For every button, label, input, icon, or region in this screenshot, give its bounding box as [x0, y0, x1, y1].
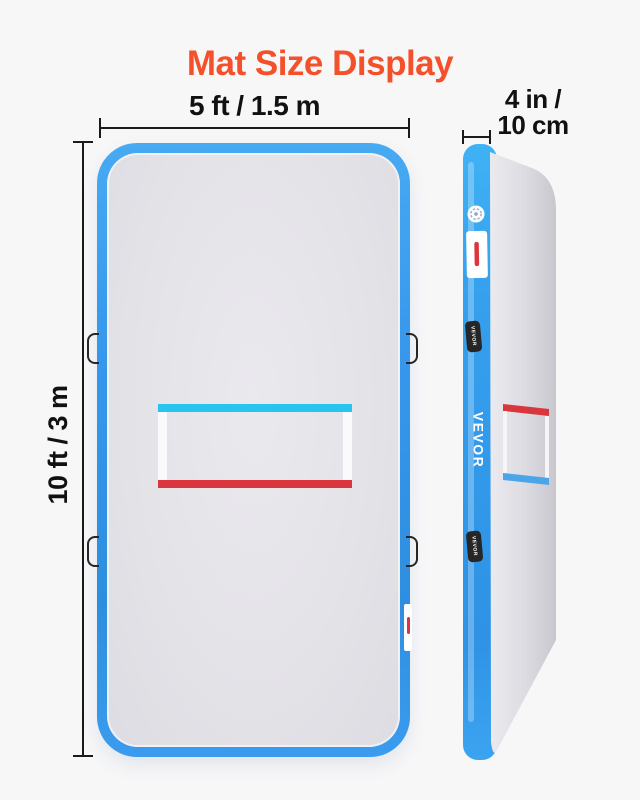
edge-label-red-mark [407, 617, 410, 634]
side-marking-left-line [503, 411, 507, 473]
side-white-label [466, 231, 488, 278]
mat-size-diagram: Mat Size Display 5 ft / 1.5 m 10 ft / 3 … [0, 0, 640, 800]
mat-handle [406, 536, 418, 567]
mat-handle [87, 333, 99, 364]
mat-top-view [97, 143, 410, 757]
mat-handle [87, 536, 99, 567]
dim-line [82, 141, 84, 757]
page-title: Mat Size Display [0, 44, 640, 84]
center-marking-red-line [158, 480, 352, 488]
air-valve-icon [468, 206, 485, 223]
height-dimension-line [73, 141, 93, 757]
dim-tick [408, 118, 410, 138]
thickness-label-line1: 4 in / [480, 86, 586, 112]
center-marking-right-line [343, 412, 352, 480]
edge-white-label [404, 604, 412, 651]
mat-side-view: VEVOR VEVOR VEVOR [440, 128, 605, 783]
side-marking-right-line [545, 416, 549, 478]
center-marking-left-line [158, 412, 167, 480]
width-dimension-line [99, 118, 410, 138]
dim-line [99, 127, 410, 129]
mat-top-surface [107, 153, 400, 747]
mat-handle [406, 333, 418, 364]
side-handle-label: VEVOR [466, 530, 484, 562]
center-marking-cyan-line [158, 404, 352, 412]
dim-tick [73, 755, 93, 757]
side-brand-text: VEVOR [470, 412, 486, 469]
side-handle-label: VEVOR [465, 320, 483, 352]
height-dimension-label: 10 ft / 3 m [43, 355, 71, 535]
